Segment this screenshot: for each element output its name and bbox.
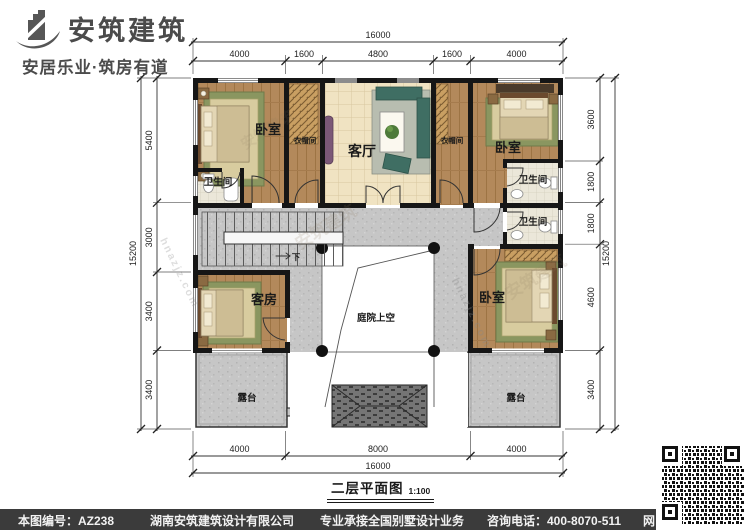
room-label-guest: 客房: [251, 292, 277, 307]
dim-right-3: 1800: [586, 213, 596, 233]
dim-bottom-2: 8000: [368, 444, 388, 454]
room-label-bedroom-bottomright: 卧室: [479, 290, 505, 305]
brand-logo-icon: [14, 6, 62, 50]
floor-plan-drawing: 安筑建筑 安筑建筑 安筑建筑 hnazjz.com hnazjz.com 卧室 …: [0, 0, 750, 530]
dim-top-4: 1600: [442, 49, 462, 59]
room-label-bath-right2: 卫生间: [519, 216, 548, 228]
terrace-right-area: [468, 352, 560, 427]
dim-left-4: 3400: [144, 380, 154, 400]
room-label-terrace-left: 露台: [237, 392, 257, 404]
dim-right-4: 4600: [586, 287, 596, 307]
plan-title: 二层平面图: [331, 477, 404, 497]
window-block: [335, 78, 357, 83]
dim-right-5: 3400: [586, 380, 596, 400]
column: [316, 345, 328, 357]
dim-left-total: 15200: [128, 241, 138, 266]
plan-title-block: 二层平面图 1:100: [327, 477, 434, 503]
wardrobe-right: [436, 84, 448, 144]
footer-service: 专业承接全国别墅设计业务: [320, 512, 464, 529]
dim-bottom-total: 16000: [365, 461, 390, 471]
qr-code: [656, 441, 750, 530]
footer-web-char: 网: [643, 512, 655, 529]
footer-phone: 咨询电话：400-8070-511: [487, 512, 621, 529]
dim-top-5: 4000: [506, 49, 526, 59]
dim-right-1: 3600: [586, 109, 596, 129]
footer-bar: 本图编号：AZ238 湖南安筑建筑设计有限公司 专业承接全国别墅设计业务 咨询电…: [0, 509, 750, 530]
stair-down-label: 下: [292, 252, 301, 262]
footer-company: 湖南安筑建筑设计有限公司: [150, 512, 294, 529]
dim-left-3: 3400: [144, 301, 154, 321]
column: [428, 242, 440, 254]
room-label-cloakroom-left: 衣帽间: [294, 135, 317, 145]
dim-top-3: 4800: [368, 49, 388, 59]
plan-scale: 1:100: [409, 486, 431, 497]
room-label-bedroom-topleft: 卧室: [255, 122, 281, 137]
room-label-cloakroom-right: 衣帽间: [441, 135, 464, 145]
bed-guest: [198, 276, 261, 346]
brand-name: 安筑建筑: [68, 9, 188, 48]
room-label-terrace-right: 露台: [506, 392, 526, 404]
room-label-courtyard: 庭院上空: [357, 312, 396, 324]
brand-tagline: 安居乐业·筑房有道: [22, 54, 169, 78]
window-block: [397, 78, 419, 83]
dim-top-2: 1600: [294, 49, 314, 59]
column: [428, 345, 440, 357]
room-label-bath-left: 卫生间: [204, 176, 233, 188]
dim-bottom-1: 4000: [229, 444, 249, 454]
poster-canvas: 安筑建筑 安筑建筑 安筑建筑 hnazjz.com hnazjz.com 卧室 …: [0, 0, 750, 530]
dim-top-1: 4000: [229, 49, 249, 59]
dim-top-total: 16000: [365, 30, 390, 40]
dim-left-1: 5400: [144, 130, 154, 150]
dim-right-total: 15200: [601, 241, 611, 266]
wardrobe-left: [289, 84, 318, 144]
room-label-bath-right1: 卫生间: [519, 174, 548, 186]
footer-plan-number: 本图编号：AZ238: [18, 512, 114, 529]
dim-bottom-3: 4000: [506, 444, 526, 454]
dim-left-2: 3000: [144, 227, 154, 247]
dim-right-2: 1800: [586, 172, 596, 192]
room-label-living: 客厅: [347, 143, 376, 159]
entry-roof: [332, 385, 427, 427]
tv-console: [324, 116, 333, 164]
terrace-left-area: [196, 352, 287, 427]
room-label-bedroom-topright: 卧室: [495, 140, 521, 155]
logo-block: 安筑建筑: [14, 6, 188, 50]
